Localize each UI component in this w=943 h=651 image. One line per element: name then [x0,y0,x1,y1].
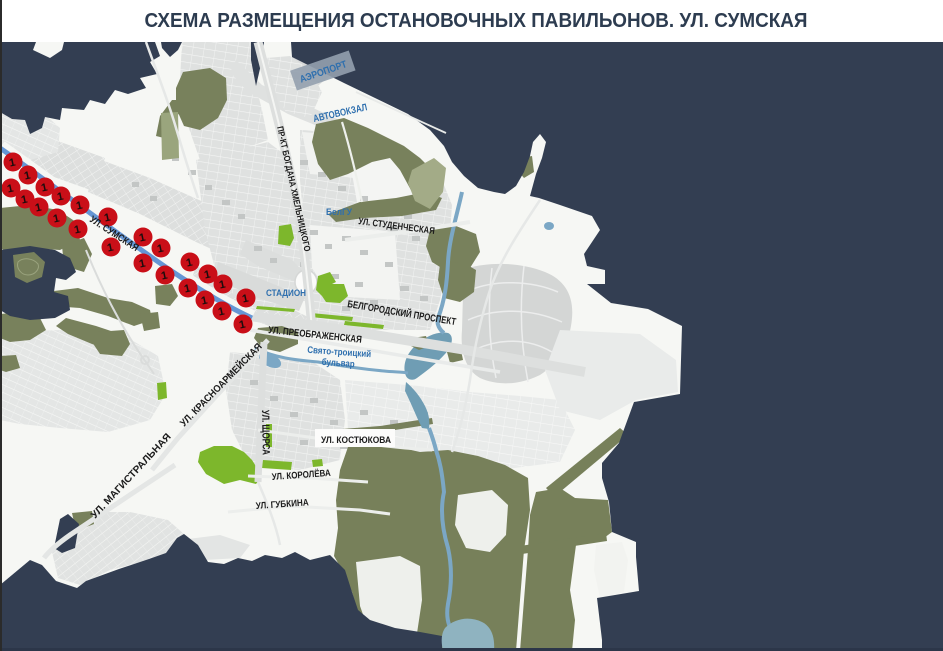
svg-text:СХЕМА РАЗМЕЩЕНИЯ ОСТАНОВОЧНЫХ: СХЕМА РАЗМЕЩЕНИЯ ОСТАНОВОЧНЫХ ПАВИЛЬОНОВ… [145,10,808,32]
svg-text:УЛ. ЩОРСА: УЛ. ЩОРСА [259,410,272,456]
svg-text:бульвар: бульвар [321,357,355,370]
svg-text:БелГУ: БелГУ [326,207,352,218]
svg-text:СТАДИОН: СТАДИОН [266,288,306,299]
svg-text:УЛ. КОСТЮКОВА: УЛ. КОСТЮКОВА [321,435,391,446]
